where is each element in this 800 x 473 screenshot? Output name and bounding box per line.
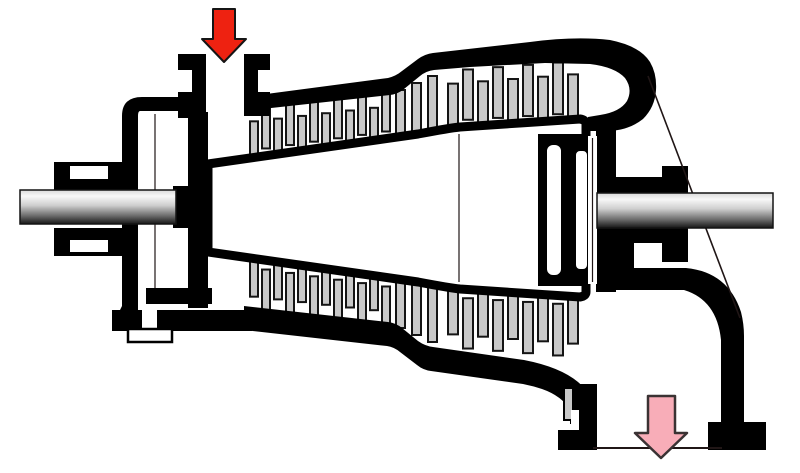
stator-blade bbox=[286, 273, 294, 314]
outlet-wall-notch bbox=[571, 410, 579, 424]
stator-blade bbox=[493, 300, 503, 351]
right-shaft bbox=[597, 193, 773, 228]
inlet-pipe-left-flange-notch bbox=[174, 70, 192, 92]
stator-blade bbox=[358, 96, 366, 135]
balance-piston-inset-left bbox=[546, 144, 562, 276]
turbine-cross-section-svg bbox=[0, 0, 800, 473]
outlet-left-flange bbox=[558, 430, 597, 450]
stator-blade bbox=[358, 283, 366, 322]
stator-blade bbox=[334, 99, 342, 138]
step-blade bbox=[428, 282, 437, 342]
turbine-diagram-stage bbox=[0, 0, 800, 473]
right-bracket-top-band bbox=[616, 177, 666, 194]
stator-blade bbox=[523, 302, 533, 353]
stator-blade bbox=[262, 270, 270, 311]
left-bearing-housing-top-notch bbox=[70, 166, 108, 179]
drain-flange-pad bbox=[128, 329, 172, 342]
stator-blade bbox=[553, 304, 563, 356]
stator-blade bbox=[310, 276, 318, 316]
stator-blade bbox=[523, 65, 533, 116]
right-bracket-bottom-block bbox=[662, 226, 688, 262]
exhaust-hood-right-foot bbox=[708, 422, 766, 450]
stator-blade bbox=[463, 298, 473, 348]
stator-blade bbox=[463, 69, 473, 119]
stator-blade bbox=[382, 286, 390, 324]
stator-blade bbox=[382, 93, 390, 131]
stator-blade bbox=[286, 104, 294, 145]
left-shaft bbox=[20, 190, 176, 224]
stator-blade bbox=[334, 280, 342, 319]
left-bearing-housing-bottom-notch bbox=[70, 240, 108, 252]
stator-blade bbox=[493, 67, 503, 118]
balance-piston-inset-right bbox=[575, 150, 588, 270]
inlet-pipe-right-flange-notch bbox=[258, 70, 276, 92]
stator-blade bbox=[310, 102, 318, 142]
stator-blade bbox=[553, 63, 563, 115]
